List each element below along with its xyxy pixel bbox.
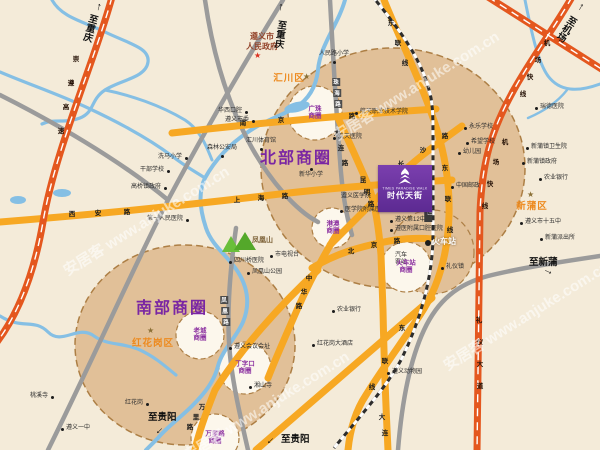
- direction-label: 至贵阳: [148, 409, 177, 423]
- poi-dot: [466, 142, 469, 145]
- map-geometry: [0, 0, 600, 450]
- sub-circle-label: 广珠 商圈: [309, 106, 322, 121]
- poi-label: 礼仪镇: [446, 264, 464, 271]
- poi-label: 遵义动物园: [392, 369, 422, 376]
- poi-label: 新华小学: [299, 172, 323, 179]
- business-circle-label: 北部商圈: [260, 144, 332, 168]
- road-label-char: 珠: [332, 78, 340, 86]
- road-label-char: 速: [58, 125, 65, 135]
- road-label-char: 线: [402, 57, 409, 67]
- road-label-char: 崇: [73, 53, 80, 63]
- poi-dot: [441, 267, 444, 270]
- poi-dot: [355, 112, 358, 115]
- poi-dot: [522, 162, 525, 165]
- poi-label: 幼儿园: [463, 149, 481, 156]
- road-label-char: 连: [338, 142, 345, 152]
- road-label-char: 路: [222, 318, 230, 326]
- road-label-char: 路: [394, 235, 401, 245]
- poi-dot: [221, 155, 224, 158]
- road-label-char: 线: [520, 88, 527, 98]
- poi-dot: [252, 120, 255, 123]
- road-highway-northeast: [488, 0, 600, 70]
- district-star-icon: ★: [147, 327, 154, 335]
- road-label-char: 北: [348, 245, 355, 255]
- poi-dot: [535, 107, 538, 110]
- road-label-char: 路: [296, 300, 303, 310]
- poi-label: 航天医院: [338, 134, 362, 141]
- poi-label: 永乐学校: [469, 124, 493, 131]
- poi-dot: [247, 272, 250, 275]
- road-label-char: 路: [187, 421, 194, 431]
- road-label-char: 连: [382, 427, 389, 437]
- poi-label: 遵义市十五中: [525, 219, 561, 226]
- poi-label: 第一人民医院: [147, 216, 183, 223]
- poi-label: 中国邮政: [456, 183, 480, 190]
- road-label-char: 路: [442, 130, 449, 140]
- poi-dot: [333, 61, 336, 64]
- business-circle-label: 南部商圈: [136, 294, 208, 318]
- poi-label: 湘山寺: [254, 383, 272, 390]
- road-label-char: 东: [388, 17, 395, 27]
- road-label-char: 线: [482, 200, 489, 210]
- road-label-char: 上: [234, 194, 241, 204]
- road-label-char: 路: [282, 190, 289, 200]
- road-label-char: 联: [445, 193, 452, 203]
- poi-label: 农业银行: [337, 307, 361, 314]
- road-label-char: 场: [493, 156, 500, 166]
- poi-label: 新蒲派出所: [545, 235, 575, 242]
- road-label-char: 仪: [477, 336, 484, 346]
- road-label-char: 场: [535, 54, 542, 64]
- landmark-times-paradise-walk: TIMES PARADISE WALK 时代天街: [378, 165, 432, 212]
- road-label-char: 海: [333, 89, 341, 97]
- road-label-char: 机: [544, 37, 551, 47]
- direction-arrow-icon: ↑: [277, 2, 284, 14]
- road-label-char: 快: [527, 71, 534, 81]
- poi-label: 红花岗: [125, 400, 143, 407]
- road-label-char: 大: [379, 411, 386, 421]
- road-label-char: 路: [124, 206, 131, 216]
- poi-label: 遵义医学院: [341, 194, 371, 201]
- poi-dot: [387, 372, 390, 375]
- road-label-char: 中: [306, 272, 313, 282]
- district-label: 汇川区: [273, 70, 305, 84]
- poi-dot: [229, 347, 232, 350]
- poi-dot: [539, 178, 542, 181]
- poi-label: 遵义市委: [225, 117, 249, 124]
- road-label-char: 大: [477, 358, 484, 368]
- poi-label: 航天职业技术学院: [360, 109, 408, 116]
- poi-label: 凤凰山公园: [252, 269, 282, 276]
- poi-label: 高桥镇政府: [131, 184, 161, 191]
- district-star-icon: ★: [527, 191, 534, 199]
- poi-dot: [390, 220, 393, 223]
- poi-label: 瑞德医院: [540, 104, 564, 111]
- poi-dot: [229, 261, 232, 264]
- sub-circle-label: 港澳 商圈: [327, 221, 340, 236]
- road-label-char: 路: [342, 157, 349, 167]
- poi-label: 遵义会议会址: [234, 344, 270, 351]
- landmark-name-en: TIMES PARADISE WALK: [382, 187, 427, 190]
- road-label-char: 东: [442, 162, 449, 172]
- poi-label: 干部学校: [140, 167, 164, 174]
- poi-dot: [185, 157, 188, 160]
- zunyi-area-map: TIMES PARADISE WALK 时代天街 第一人民医院华西口腔遵义市委汇…: [0, 0, 600, 450]
- mountain-label: 凤凰山: [252, 235, 273, 245]
- mountain-icon: [222, 232, 256, 252]
- road-label-char: 快: [487, 178, 494, 188]
- road-label-char: 昆: [360, 174, 367, 184]
- road-label-char: 里: [193, 411, 200, 421]
- road-label-char: 海: [258, 192, 265, 202]
- sub-circle-label: 万里路 商圈: [205, 431, 225, 446]
- road-label-char: 华: [301, 286, 308, 296]
- river-west-branch: [0, 72, 205, 178]
- poi-label: 遵义一中: [66, 425, 90, 432]
- poi-dot: [540, 238, 543, 241]
- poi-label: 市电视台: [275, 252, 299, 259]
- poi-dot: [270, 255, 273, 258]
- poi-dot: [51, 396, 54, 399]
- poi-dot: [390, 229, 393, 232]
- poi-label: 新蒲镇政府: [527, 159, 557, 166]
- poi-dot: [520, 222, 523, 225]
- poi-label: 火车站: [432, 238, 456, 247]
- lake-west-1: [53, 189, 71, 197]
- road-label-char: 礼: [476, 314, 483, 324]
- poi-dot: [164, 187, 167, 190]
- poi-dot: [312, 344, 315, 347]
- poi-dot: [146, 403, 149, 406]
- poi-dot: [61, 428, 64, 431]
- poi-dot: [245, 111, 248, 114]
- road-label-char: 凤: [220, 296, 228, 304]
- sub-circle-label: 火车站 商圈: [396, 260, 416, 275]
- poi-label: 新蒲镇卫生院: [531, 144, 567, 151]
- road-label-char: 京: [371, 239, 378, 249]
- poi-dot: [333, 137, 336, 140]
- road-label-char: 东: [399, 322, 406, 332]
- road-label-char: 路: [349, 110, 356, 120]
- poi-label: 遵医附属口腔医院: [395, 226, 443, 233]
- poi-dot: [464, 127, 467, 130]
- poi-dot: [332, 310, 335, 313]
- road-label-char: 万: [199, 401, 206, 411]
- city-government-star-icon: ★: [254, 52, 261, 60]
- district-star-icon: ★: [303, 73, 310, 81]
- district-label: 新蒲区: [516, 198, 548, 212]
- road-label-char: 西: [69, 208, 76, 218]
- poi-label: 桃溪寺: [30, 393, 48, 400]
- poi-label: 华西口腔: [218, 108, 242, 115]
- road-label-char: 高: [63, 101, 70, 111]
- poi-dot: [458, 152, 461, 155]
- sub-circle-label: 丁字口 商圈: [235, 361, 255, 376]
- poi-label: 人民路小学: [319, 51, 349, 58]
- road-label-char: 联: [382, 355, 389, 365]
- road-label-char: 沙: [420, 144, 427, 154]
- lake-west-2: [10, 196, 26, 204]
- direction-label: 至贵阳: [281, 431, 310, 445]
- district-label: 红花岗区: [132, 335, 174, 349]
- road-label-char: 遵: [68, 77, 75, 87]
- road-label-char: 机: [502, 136, 509, 146]
- road-label-char: 凰: [221, 307, 229, 315]
- poi-label: 红花岗大酒店: [317, 341, 353, 348]
- landmark-flame-icon: [397, 168, 413, 187]
- poi-dot: [186, 219, 189, 222]
- poi-label: 希望学校: [471, 139, 495, 146]
- landmark-name-cn: 时代天街: [387, 190, 423, 201]
- poi-label: 森林公安局: [207, 145, 237, 152]
- poi-dot: [425, 240, 431, 246]
- poi-dot: [340, 210, 343, 213]
- road-label-char: 线: [447, 224, 454, 234]
- poi-label: 洗马小学: [158, 154, 182, 161]
- poi-dot: [249, 386, 252, 389]
- poi-dot: [526, 147, 529, 150]
- poi-dot: [451, 186, 454, 189]
- poi-label: 四川桥医院: [234, 258, 264, 265]
- road-label-char: 线: [369, 381, 376, 391]
- road-label-char: 京: [278, 114, 285, 124]
- road-label-char: 道: [477, 380, 484, 390]
- poi-label: 农业银行: [544, 175, 568, 182]
- poi-dot: [167, 170, 170, 173]
- road-label-char: 路: [334, 100, 342, 108]
- road-label-char: 联: [395, 37, 402, 47]
- sub-circle-label: 老城 商圈: [194, 328, 207, 343]
- road-label-char: 安: [95, 207, 102, 217]
